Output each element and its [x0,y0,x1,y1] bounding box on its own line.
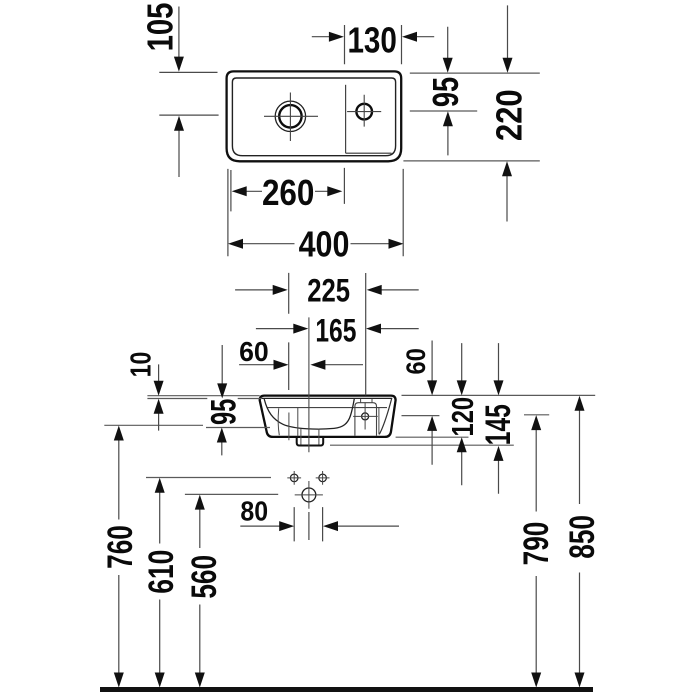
svg-text:95: 95 [425,77,466,107]
svg-text:60: 60 [401,348,431,374]
svg-text:145: 145 [479,404,518,445]
svg-text:165: 165 [315,312,356,348]
svg-text:220: 220 [488,89,529,141]
svg-text:400: 400 [299,223,350,264]
svg-text:60: 60 [239,336,269,367]
svg-text:80: 80 [240,496,268,527]
svg-text:790: 790 [517,522,556,566]
svg-text:130: 130 [347,20,397,61]
svg-text:760: 760 [101,525,140,569]
svg-text:95: 95 [204,399,243,425]
svg-text:225: 225 [307,273,350,309]
svg-text:120: 120 [445,397,480,437]
svg-text:260: 260 [262,172,315,213]
svg-text:560: 560 [185,555,224,599]
svg-text:105: 105 [140,3,181,52]
svg-text:610: 610 [142,550,181,594]
svg-text:10: 10 [125,352,157,378]
svg-text:850: 850 [563,515,602,559]
